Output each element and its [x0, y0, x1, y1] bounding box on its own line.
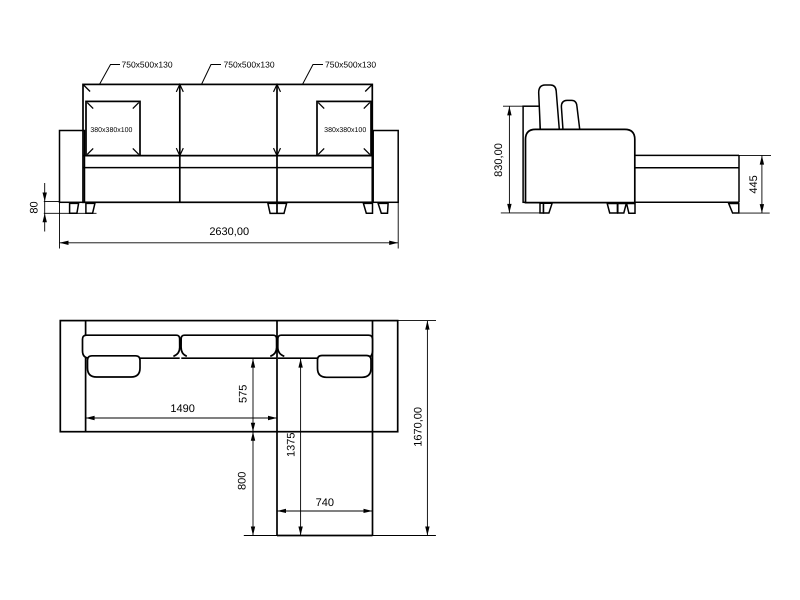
svg-text:750x500x130: 750x500x130 [325, 60, 376, 70]
svg-text:80: 80 [29, 201, 41, 213]
svg-text:1670,00: 1670,00 [412, 407, 424, 447]
svg-text:445: 445 [748, 175, 760, 193]
svg-text:1490: 1490 [170, 403, 194, 415]
svg-text:750x500x130: 750x500x130 [224, 60, 275, 70]
svg-text:830,00: 830,00 [493, 143, 505, 177]
svg-text:380x380x100: 380x380x100 [90, 127, 132, 134]
svg-text:750x500x130: 750x500x130 [122, 60, 173, 70]
svg-text:1375: 1375 [285, 433, 297, 457]
svg-text:380x380x100: 380x380x100 [324, 127, 366, 134]
svg-text:740: 740 [316, 497, 334, 509]
svg-text:800: 800 [236, 472, 248, 490]
svg-text:2630,00: 2630,00 [209, 226, 249, 238]
svg-text:575: 575 [237, 385, 249, 403]
